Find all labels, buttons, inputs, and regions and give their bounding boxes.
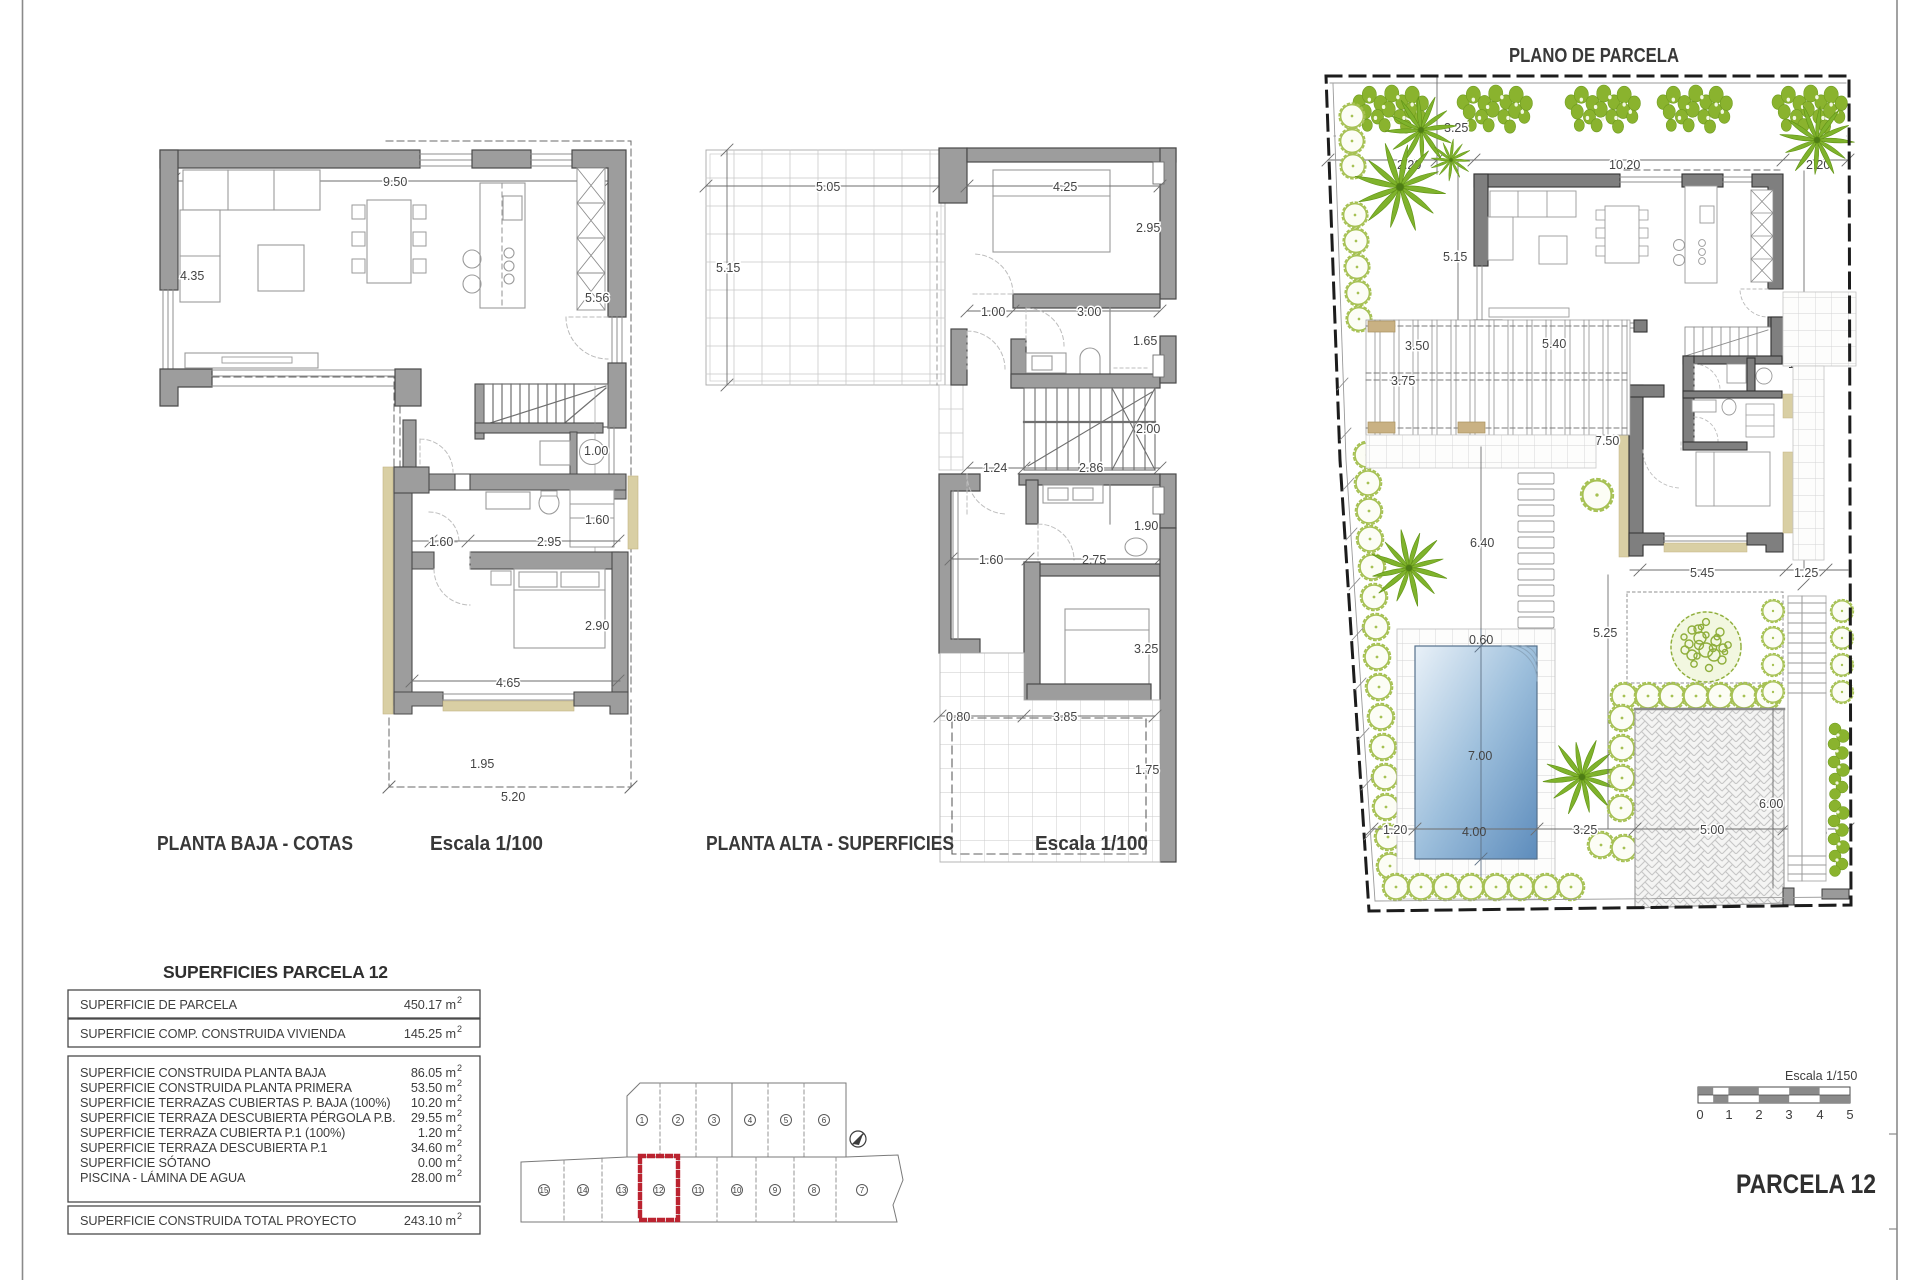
- svg-text:6.40: 6.40: [1470, 536, 1494, 550]
- svg-text:1.60: 1.60: [429, 535, 453, 549]
- svg-text:2: 2: [457, 1093, 462, 1103]
- svg-text:3.75: 3.75: [1391, 374, 1415, 388]
- svg-text:4.00: 4.00: [1462, 825, 1486, 839]
- svg-text:1.60: 1.60: [979, 553, 1003, 567]
- svg-text:Escala 1/150: Escala 1/150: [1785, 1069, 1857, 1083]
- svg-text:1.20: 1.20: [1383, 823, 1407, 837]
- svg-text:2.86: 2.86: [1079, 461, 1103, 475]
- svg-text:2: 2: [457, 1138, 462, 1148]
- svg-text:PISCINA - LÁMINA DE AGUA: PISCINA - LÁMINA DE AGUA: [80, 1170, 246, 1185]
- svg-text:1.00: 1.00: [981, 305, 1005, 319]
- svg-text:1.60: 1.60: [585, 513, 609, 527]
- svg-text:4.25: 4.25: [1053, 180, 1077, 194]
- svg-text:1.95: 1.95: [470, 757, 494, 771]
- svg-text:0.80: 0.80: [946, 710, 970, 724]
- svg-text:PLANTA ALTA - SUPERFICIES: PLANTA ALTA - SUPERFICIES: [706, 833, 954, 855]
- svg-text:2: 2: [457, 1168, 462, 1178]
- svg-text:2: 2: [1755, 1107, 1762, 1122]
- svg-text:2: 2: [457, 1211, 462, 1221]
- svg-text:2: 2: [676, 1116, 681, 1125]
- svg-text:3.85: 3.85: [1053, 710, 1077, 724]
- svg-text:2.00: 2.00: [1136, 422, 1160, 436]
- svg-text:10.20 m: 10.20 m: [411, 1096, 456, 1110]
- svg-text:2.90: 2.90: [585, 619, 609, 633]
- svg-text:3.25: 3.25: [1134, 642, 1158, 656]
- svg-text:5.45: 5.45: [1690, 566, 1714, 580]
- svg-text:SUPERFICIE TERRAZA DESCUBIERTA: SUPERFICIE TERRAZA DESCUBIERTA P.1: [80, 1141, 327, 1155]
- svg-text:4: 4: [748, 1116, 753, 1125]
- svg-text:3.00: 3.00: [1077, 305, 1101, 319]
- svg-text:2: 2: [457, 1063, 462, 1073]
- svg-text:29.55 m: 29.55 m: [411, 1111, 456, 1125]
- svg-text:5.00: 5.00: [1700, 823, 1724, 837]
- svg-text:15: 15: [540, 1186, 549, 1195]
- svg-text:4: 4: [1816, 1107, 1823, 1122]
- svg-text:SUPERFICIE TERRAZA CUBIERTA P.: SUPERFICIE TERRAZA CUBIERTA P.1 (100%): [80, 1126, 345, 1140]
- svg-text:7: 7: [860, 1186, 865, 1195]
- svg-text:3: 3: [1785, 1107, 1792, 1122]
- svg-text:0: 0: [1696, 1107, 1703, 1122]
- svg-text:SUPERFICIE DE PARCELA: SUPERFICIE DE PARCELA: [80, 998, 238, 1012]
- svg-text:6: 6: [822, 1116, 827, 1125]
- svg-text:5: 5: [1846, 1107, 1853, 1122]
- svg-text:7.50: 7.50: [1595, 434, 1619, 448]
- svg-text:5.05: 5.05: [816, 180, 840, 194]
- svg-text:SUPERFICIE SÓTANO: SUPERFICIE SÓTANO: [80, 1155, 211, 1170]
- svg-text:4.65: 4.65: [496, 676, 520, 690]
- svg-text:5.15: 5.15: [1443, 250, 1467, 264]
- svg-text:4.35: 4.35: [180, 269, 204, 283]
- svg-text:1: 1: [1725, 1107, 1732, 1122]
- svg-text:1.65: 1.65: [1133, 334, 1157, 348]
- svg-text:3: 3: [712, 1116, 717, 1125]
- svg-text:5.20: 5.20: [501, 790, 525, 804]
- svg-text:SUPERFICIE CONSTRUIDA PLANTA P: SUPERFICIE CONSTRUIDA PLANTA PRIMERA: [80, 1081, 352, 1095]
- svg-text:145.25 m: 145.25 m: [404, 1027, 456, 1041]
- svg-text:11: 11: [694, 1186, 703, 1195]
- svg-text:6.00: 6.00: [1759, 797, 1783, 811]
- svg-text:1.75: 1.75: [1135, 763, 1159, 777]
- svg-text:SUPERFICIE CONSTRUIDA TOTAL PR: SUPERFICIE CONSTRUIDA TOTAL PROYECTO: [80, 1214, 357, 1228]
- svg-text:2: 2: [457, 1123, 462, 1133]
- svg-text:1.00: 1.00: [584, 444, 608, 458]
- svg-text:1.24: 1.24: [983, 461, 1007, 475]
- svg-text:7.00: 7.00: [1468, 749, 1492, 763]
- svg-text:10: 10: [733, 1186, 742, 1195]
- svg-text:SUPERFICIE CONSTRUIDA PLANTA B: SUPERFICIE CONSTRUIDA PLANTA BAJA: [80, 1066, 327, 1080]
- svg-text:12: 12: [655, 1186, 664, 1195]
- svg-text:53.50 m: 53.50 m: [411, 1081, 456, 1095]
- svg-text:2: 2: [457, 1108, 462, 1118]
- svg-text:0.00 m: 0.00 m: [418, 1156, 456, 1170]
- svg-text:2: 2: [457, 1153, 462, 1163]
- svg-text:2: 2: [457, 1024, 462, 1034]
- svg-text:9: 9: [773, 1186, 778, 1195]
- svg-text:SUPERFICIES PARCELA 12: SUPERFICIES PARCELA 12: [163, 962, 388, 982]
- svg-text:9.50: 9.50: [383, 175, 407, 189]
- svg-text:13: 13: [618, 1186, 627, 1195]
- svg-text:86.05 m: 86.05 m: [411, 1066, 456, 1080]
- svg-text:PARCELA 12: PARCELA 12: [1736, 1169, 1876, 1199]
- svg-text:0.60: 0.60: [1469, 633, 1493, 647]
- svg-text:SUPERFICIE TERRAZA DESCUBIERTA: SUPERFICIE TERRAZA DESCUBIERTA PÉRGOLA P…: [80, 1110, 396, 1125]
- svg-text:3.25: 3.25: [1573, 823, 1597, 837]
- svg-text:PLANTA BAJA - COTAS: PLANTA BAJA - COTAS: [157, 833, 353, 855]
- svg-text:PLANO DE PARCELA: PLANO DE PARCELA: [1509, 45, 1679, 67]
- svg-text:5.40: 5.40: [1542, 337, 1566, 351]
- svg-text:8: 8: [812, 1186, 817, 1195]
- svg-text:28.00 m: 28.00 m: [411, 1171, 456, 1185]
- svg-text:SUPERFICIE TERRAZAS CUBIERTAS: SUPERFICIE TERRAZAS CUBIERTAS P. BAJA (1…: [80, 1096, 391, 1110]
- svg-text:2: 2: [457, 1078, 462, 1088]
- svg-text:5.25: 5.25: [1593, 626, 1617, 640]
- svg-text:2.95: 2.95: [1136, 221, 1160, 235]
- svg-text:1.25: 1.25: [1794, 566, 1818, 580]
- svg-text:14: 14: [579, 1186, 588, 1195]
- svg-text:Escala 1/100: Escala 1/100: [1035, 833, 1148, 855]
- svg-text:3.50: 3.50: [1405, 339, 1429, 353]
- svg-text:2: 2: [457, 995, 462, 1005]
- svg-text:SUPERFICIE COMP. CONSTRUIDA VI: SUPERFICIE COMP. CONSTRUIDA VIVIENDA: [80, 1027, 346, 1041]
- svg-text:5.56: 5.56: [585, 291, 609, 305]
- svg-text:Escala 1/100: Escala 1/100: [430, 833, 543, 855]
- svg-text:1.90: 1.90: [1134, 519, 1158, 533]
- svg-text:2.95: 2.95: [537, 535, 561, 549]
- svg-text:1: 1: [640, 1116, 645, 1125]
- svg-text:1.20 m: 1.20 m: [418, 1126, 456, 1140]
- svg-text:34.60 m: 34.60 m: [411, 1141, 456, 1155]
- svg-text:243.10 m: 243.10 m: [404, 1214, 456, 1228]
- svg-text:5.15: 5.15: [716, 261, 740, 275]
- svg-text:5: 5: [784, 1116, 789, 1125]
- svg-text:450.17 m: 450.17 m: [404, 998, 456, 1012]
